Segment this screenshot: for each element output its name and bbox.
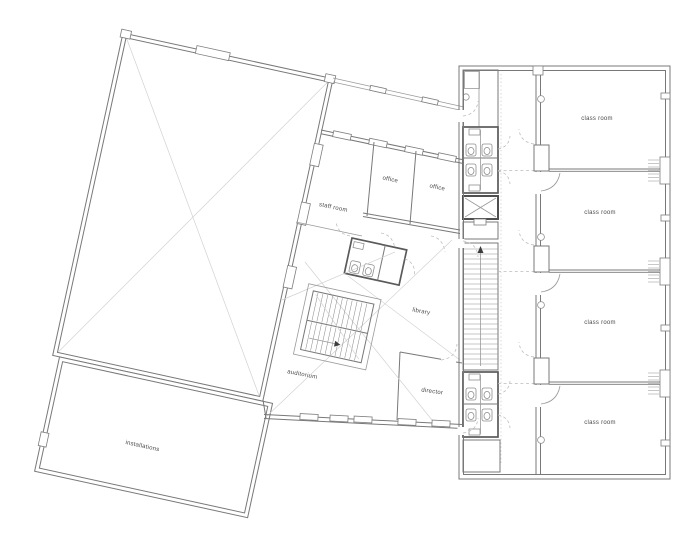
room-label-classroom-2: class room (584, 210, 616, 216)
room-label-classroom-4: class room (584, 420, 616, 426)
corridor-crossings (498, 171, 536, 384)
toilet-block-south (463, 372, 510, 437)
door-arc (336, 222, 350, 236)
office-door-arc (431, 236, 445, 252)
left-building: installations (26, 29, 344, 518)
offices-north-wall (321, 130, 462, 163)
staff-room-wall (296, 222, 362, 236)
toilet-block-north (463, 127, 510, 193)
middle-south-wall (264, 414, 462, 429)
room-label-staff-room: staff room (318, 202, 348, 214)
entry-glazing (333, 78, 464, 111)
classroom-partitions (519, 129, 670, 404)
main-stair (463, 243, 498, 370)
central-toilet-block (344, 238, 419, 288)
services-column (463, 70, 510, 472)
stair-lobby (463, 219, 498, 239)
room-label-office-2: office (429, 183, 446, 192)
room-label-classroom-1: class room (581, 116, 613, 122)
entry-vestibule (463, 70, 498, 127)
room-label-library: library (412, 307, 431, 316)
storage-room (463, 440, 500, 472)
floor-plan-drawing: installations (0, 0, 700, 557)
room-label-auditorium: auditorium (287, 369, 318, 381)
director-room (397, 344, 462, 420)
floor-plan: installations (0, 0, 700, 557)
elevator (463, 196, 498, 219)
room-label-office-1: office (382, 175, 399, 184)
room-label-director: director (421, 388, 444, 397)
auditorium-stair (293, 284, 381, 370)
room-label-classroom-3: class room (584, 320, 616, 326)
